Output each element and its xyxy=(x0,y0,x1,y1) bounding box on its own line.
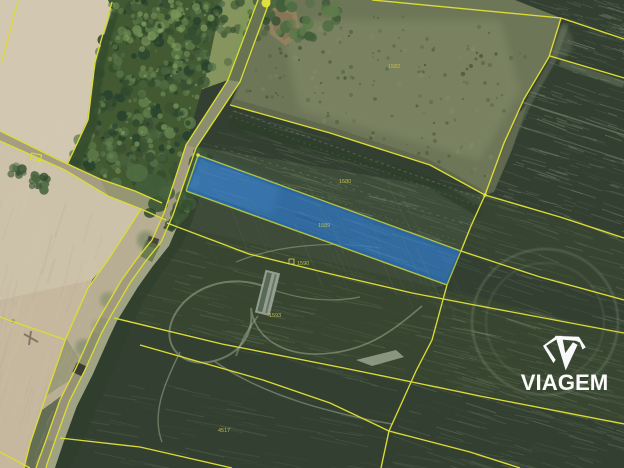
svg-text:1593: 1593 xyxy=(269,313,281,319)
svg-text:4517: 4517 xyxy=(218,428,230,434)
svg-text:1580: 1580 xyxy=(339,179,351,185)
svg-text:1589: 1589 xyxy=(318,223,330,229)
svg-text:1582: 1582 xyxy=(388,64,400,70)
svg-text:VIAGEM: VIAGEM xyxy=(521,370,609,395)
svg-text:1590: 1590 xyxy=(297,261,309,267)
